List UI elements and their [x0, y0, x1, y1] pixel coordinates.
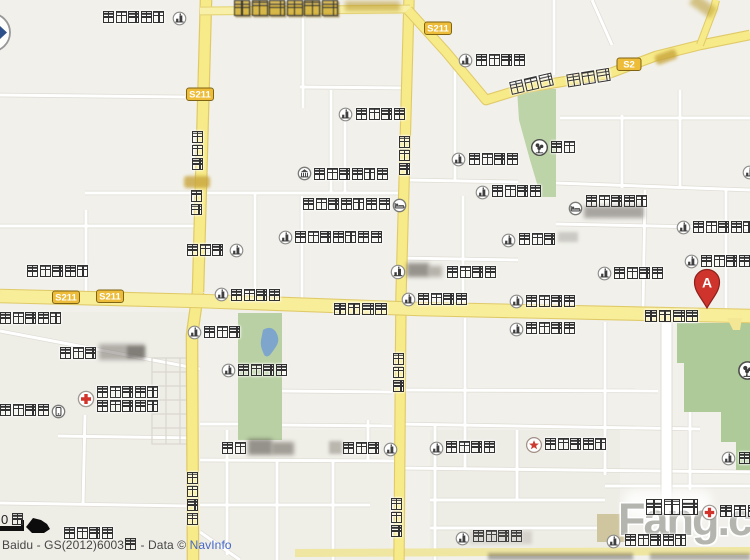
- svg-text:S211: S211: [427, 24, 449, 35]
- svg-text:S211: S211: [99, 292, 121, 303]
- svg-text:A: A: [702, 275, 712, 291]
- svg-text:S2: S2: [623, 60, 635, 71]
- svg-text:S211: S211: [189, 90, 211, 101]
- svg-text:S211: S211: [55, 293, 77, 304]
